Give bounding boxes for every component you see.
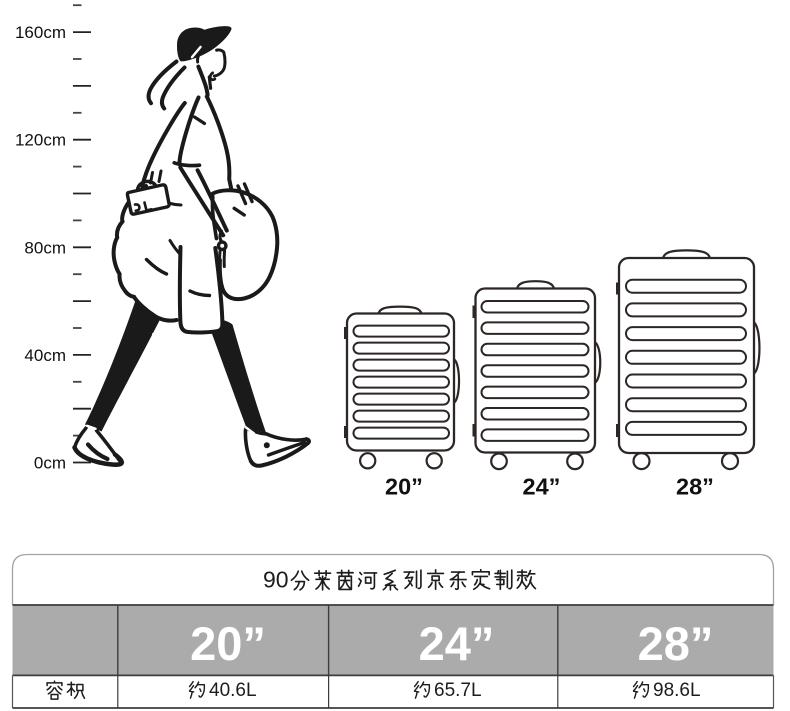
svg-text:40.6L: 40.6L	[209, 680, 257, 701]
svg-text:160cm: 160cm	[15, 23, 66, 42]
svg-text:90: 90	[263, 567, 289, 593]
svg-text:20”: 20”	[190, 617, 266, 670]
svg-text:65.7L: 65.7L	[434, 680, 482, 701]
svg-text:28”: 28”	[676, 474, 714, 500]
svg-text:120cm: 120cm	[15, 131, 66, 150]
svg-text:98.6L: 98.6L	[653, 680, 701, 701]
svg-text:24”: 24”	[523, 474, 561, 500]
svg-text:80cm: 80cm	[24, 238, 66, 257]
svg-text:24”: 24”	[419, 617, 495, 670]
svg-text:40cm: 40cm	[24, 346, 66, 365]
svg-text:28”: 28”	[638, 617, 714, 670]
svg-text:20”: 20”	[385, 474, 423, 500]
svg-text:0cm: 0cm	[34, 454, 66, 473]
